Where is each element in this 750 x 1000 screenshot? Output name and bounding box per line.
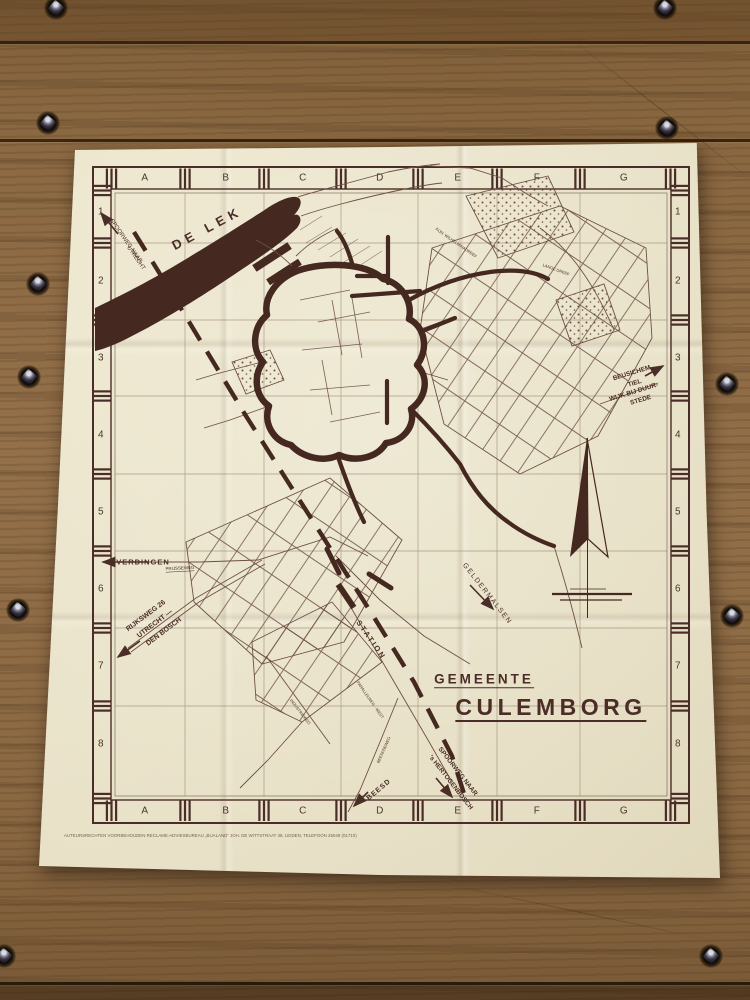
grid-number-left-7: 7 — [98, 661, 104, 672]
grid-letter-top-C: C — [299, 173, 307, 184]
paper-map-wrap: DE LEK SPOORWEG NAAR UTRECHT STEENOVENSL… — [0, 0, 750, 1000]
north-arrow-icon — [552, 438, 632, 618]
grid-number-left-3: 3 — [98, 353, 104, 364]
grid-letter-top-B: B — [222, 173, 229, 184]
grid-number-left-2: 2 — [98, 276, 104, 287]
grid-letter-top-D: D — [376, 173, 384, 184]
grid-letter-bottom-C: C — [299, 806, 307, 817]
label-everdingen: EVERDINGEN — [110, 558, 170, 566]
grid-number-right-8: 8 — [675, 739, 681, 750]
photo-scene: { "colors": { "ink": "#4a2d26", "ink_fai… — [0, 0, 750, 1000]
grid-number-left-5: 5 — [98, 507, 104, 518]
grid-number-right-3: 3 — [675, 353, 681, 364]
grid-letter-top-G: G — [620, 173, 628, 184]
grid-number-right-6: 6 — [675, 584, 681, 595]
grid-number-left-8: 8 — [98, 739, 104, 750]
grid-letter-top-F: F — [534, 173, 541, 184]
grid-letter-bottom-B: B — [222, 806, 229, 817]
grid-letter-bottom-A: A — [141, 806, 148, 817]
grid-number-right-2: 2 — [675, 276, 681, 287]
grid-number-left-1: 1 — [98, 207, 104, 218]
grid-number-right-1: 1 — [675, 207, 681, 218]
grid-letter-bottom-E: E — [454, 806, 461, 817]
map-title-gemeente: GEMEENTE — [434, 672, 534, 688]
inner-streets — [300, 290, 380, 422]
grid-number-right-5: 5 — [675, 507, 681, 518]
grid-number-left-6: 6 — [98, 584, 104, 595]
grid-letter-top-E: E — [454, 173, 461, 184]
grid-letter-top-A: A — [141, 173, 148, 184]
paper-map: DE LEK SPOORWEG NAAR UTRECHT STEENOVENSL… — [0, 0, 750, 1000]
grid-letter-bottom-G: G — [620, 806, 628, 817]
credit-line: AUTEURSRECHTEN VOORBEHOUDEN RECLAME-ADVI… — [64, 833, 357, 838]
grid-number-left-4: 4 — [98, 430, 104, 441]
grid-number-right-4: 4 — [675, 430, 681, 441]
grid-letter-bottom-D: D — [376, 806, 384, 817]
map-title-culemborg: CULEMBORG — [455, 696, 646, 722]
grid-number-right-7: 7 — [675, 661, 681, 672]
map-drawing — [0, 0, 750, 1000]
grid-letter-bottom-F: F — [534, 806, 541, 817]
